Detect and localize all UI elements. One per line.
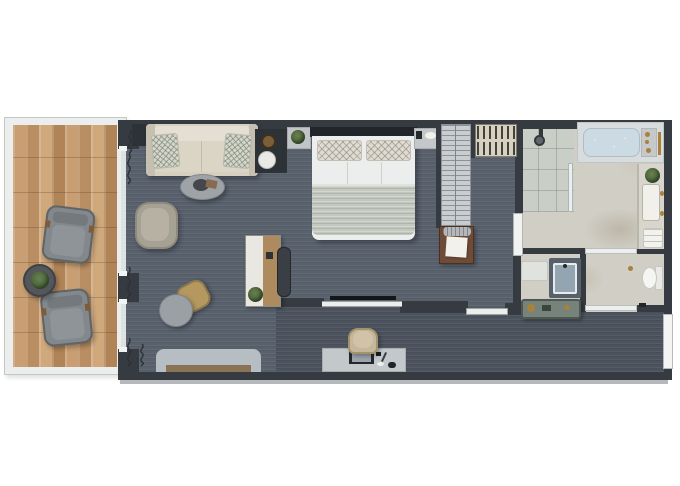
nightstand-accessory — [416, 131, 422, 139]
plant-icon — [645, 168, 660, 183]
entry-door — [663, 314, 673, 369]
chair-arm — [85, 304, 91, 311]
bed-pillow — [366, 140, 411, 161]
folded-towel — [445, 236, 467, 257]
ice-bucket — [261, 134, 276, 149]
round-side-table — [159, 294, 193, 327]
balcony-chair — [39, 288, 93, 348]
basket — [443, 227, 471, 236]
shelving-unit — [441, 124, 471, 227]
chair-arm — [88, 225, 94, 233]
desk-accessory — [376, 352, 381, 356]
exterior-wall-bottom — [118, 372, 672, 380]
faucet-icon — [660, 211, 664, 216]
accent-pillow — [223, 133, 253, 169]
shelf-divider — [455, 124, 456, 227]
curtain-icon — [124, 338, 134, 366]
bathroom-wall — [521, 248, 585, 254]
faucet-icon — [563, 264, 567, 268]
hangers-row — [477, 126, 515, 139]
chair-back — [47, 294, 83, 309]
sofa-cushion-seam — [201, 141, 202, 172]
washbasin — [642, 184, 660, 221]
console-accessory — [564, 305, 570, 310]
window-jamb — [119, 299, 127, 304]
shower-floor — [520, 129, 574, 212]
bathroom-door — [513, 213, 523, 256]
chair-seat — [50, 224, 86, 258]
floor-drain-icon — [628, 266, 633, 271]
tv — [330, 296, 396, 300]
sliding-door — [585, 305, 637, 311]
curtain-icon — [137, 344, 147, 366]
curtain-icon — [124, 267, 134, 299]
toilet — [642, 267, 657, 289]
desk-chair — [277, 247, 291, 297]
door-handle — [639, 303, 646, 307]
glass-partition — [322, 301, 402, 307]
faucet-icon — [645, 140, 649, 144]
laptop-screen — [352, 353, 371, 362]
plant-icon — [31, 271, 49, 289]
faucet-icon — [646, 148, 651, 153]
glass-partition — [466, 308, 508, 315]
wall-shadow — [120, 380, 668, 384]
plant-icon — [291, 130, 305, 144]
sheet-fold — [347, 162, 348, 184]
bath-mat — [521, 261, 548, 281]
curtain-icon — [125, 130, 135, 154]
shower-glass — [568, 163, 573, 212]
notepad — [377, 362, 384, 366]
faucet-icon — [660, 191, 664, 196]
sheet-fold — [381, 162, 382, 184]
accent-pillow — [151, 133, 181, 169]
armchair-cushion — [141, 208, 169, 241]
round-tray — [258, 151, 276, 169]
folded-towels — [643, 228, 663, 248]
chair-arm — [41, 308, 47, 315]
shower-head-icon — [534, 135, 545, 146]
console-accessory — [542, 305, 551, 311]
console-accessory — [527, 304, 535, 312]
bench-wood-tray — [166, 365, 251, 372]
mouse — [388, 362, 396, 368]
sliding-door — [585, 248, 637, 254]
bedroom-partition-wall — [400, 301, 468, 313]
chair-arm — [45, 220, 51, 228]
desk-accessory — [266, 252, 273, 259]
plant-icon — [248, 287, 263, 302]
bed-blanket — [312, 184, 415, 235]
curtain-icon — [124, 154, 134, 184]
bedroom-partition-wall — [276, 298, 324, 307]
balcony-chair — [41, 204, 96, 265]
task-chair-cushion — [353, 331, 373, 348]
towel-bar — [658, 132, 661, 155]
hangers-row — [477, 142, 515, 155]
faucet-icon — [645, 132, 650, 137]
bed-pillow — [317, 140, 362, 161]
bathtub — [583, 128, 640, 157]
chair-seat — [49, 307, 85, 340]
floor-plan — [0, 0, 680, 486]
